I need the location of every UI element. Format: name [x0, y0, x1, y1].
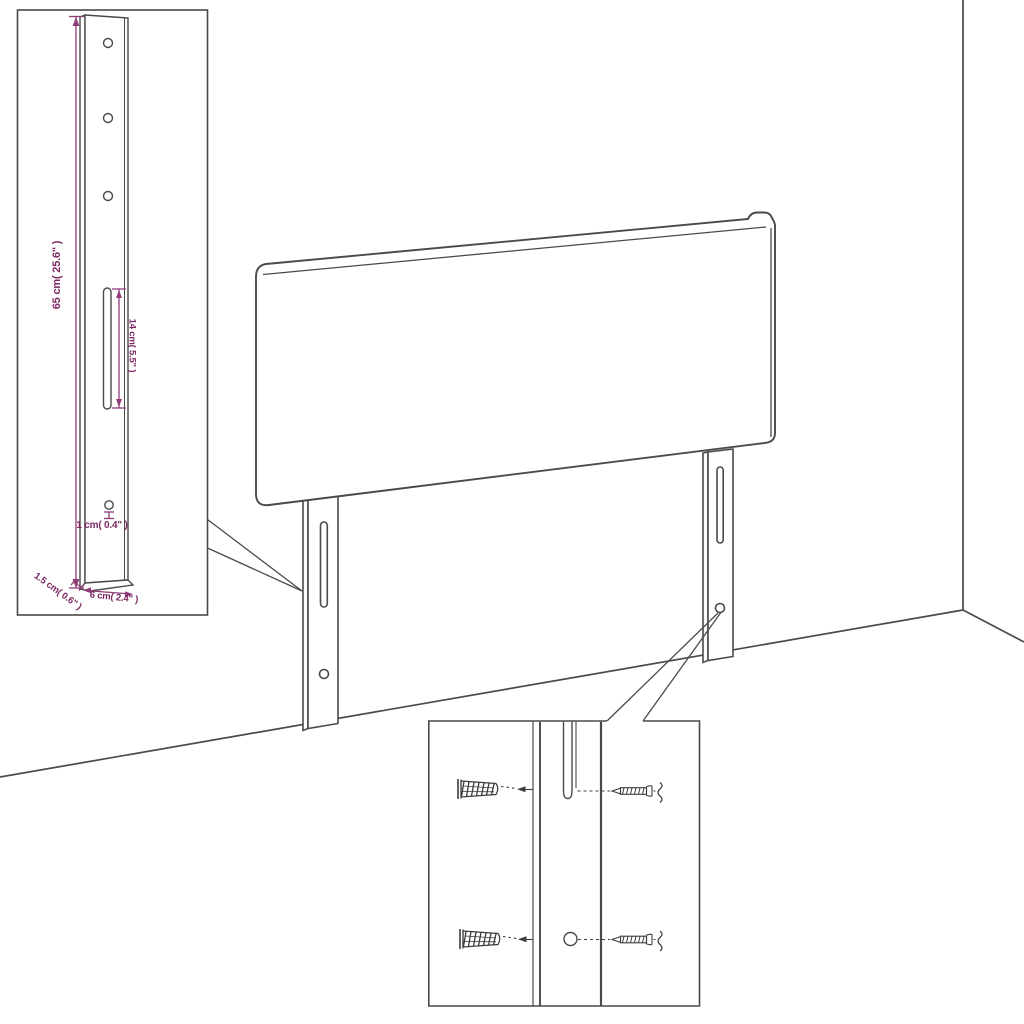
slot-length-label: 14 cm( 5.5" ) — [127, 319, 138, 373]
assembly-diagram-svg: 65 cm( 25.6" ) 14 cm( 5.5" ) 1 cm( 0.4" … — [0, 0, 1024, 1024]
floor-wall-edge-right — [963, 610, 1024, 642]
hole-diameter-label: 1 cm( 0.4" ) — [76, 520, 127, 531]
inset-leg-side-face — [80, 15, 85, 589]
leg-inset-callout-lines — [208, 520, 303, 592]
headboard-panel-outline — [256, 213, 775, 506]
inset-leg-small-hole — [105, 501, 113, 509]
inset-leg-hole-2 — [104, 114, 113, 123]
left-leg-slot — [321, 522, 328, 607]
leg-height-label: 65 cm( 25.6" ) — [51, 240, 63, 309]
right-leg-hole — [716, 604, 725, 613]
headboard-assembly-diagram: 65 cm( 25.6" ) 14 cm( 5.5" ) 1 cm( 0.4" … — [0, 0, 1024, 1024]
left-leg-hole — [320, 670, 329, 679]
fixing-inset-hole — [564, 933, 577, 946]
wall-fixing-inset — [429, 721, 700, 1006]
headboard-panel — [256, 213, 775, 506]
right-leg-slot — [717, 467, 723, 543]
leg-detail-inset: 65 cm( 25.6" ) 14 cm( 5.5" ) 1 cm( 0.4" … — [18, 10, 208, 615]
inset-leg-slot — [104, 288, 112, 409]
inset-leg-hole-3 — [104, 192, 113, 201]
inset-leg-hole-1 — [104, 39, 113, 48]
left-mounting-leg — [303, 468, 338, 731]
